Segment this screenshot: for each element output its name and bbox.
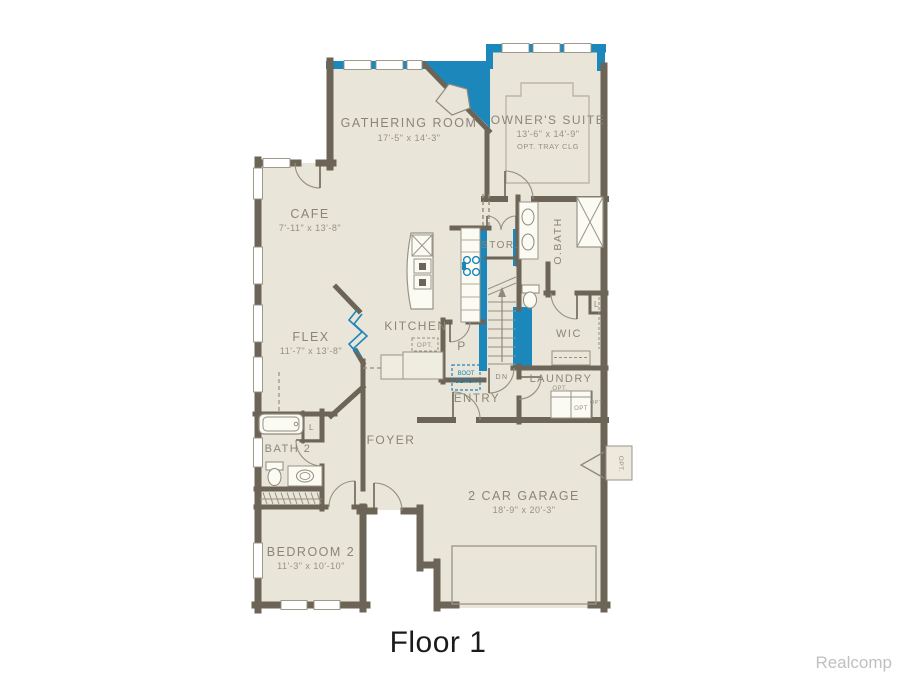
toilet-bowl (268, 469, 281, 486)
storage-label: STOR. (481, 240, 519, 251)
foyer-label: FOYER (367, 433, 416, 447)
floor-plan-page: GATHERING ROOM 17'-5" x 14'-3" OWNER'S S… (0, 0, 900, 675)
laundry-opt-washer: OPT. (552, 386, 567, 392)
window (314, 601, 340, 610)
bath2-linen-label: L (309, 423, 315, 432)
garage-label: 2 CAR GARAGE (468, 489, 580, 503)
owners-wall-step (486, 44, 493, 69)
window (254, 438, 263, 467)
stairs-dn-label: DN (495, 374, 508, 381)
window (254, 247, 263, 284)
owners-suite-label: OWNER'S SUITE (491, 113, 605, 127)
window (344, 61, 371, 70)
laundry-opt-door: OPT. (590, 400, 604, 406)
flex-label: FLEX (292, 330, 329, 344)
window (564, 44, 591, 53)
kitchen-opt-label: OPT. (417, 342, 433, 349)
window (281, 601, 307, 610)
gathering-room-label: GATHERING ROOM (341, 116, 478, 130)
laundry-opt-dryer: OPT (574, 406, 588, 412)
cafe-label: CAFE (290, 207, 329, 221)
garage-opt-door-label: OPT. (617, 456, 624, 472)
window (254, 357, 263, 392)
floor-title: Floor 1 (0, 626, 876, 660)
boot-bench-line2: BENCH (455, 379, 476, 385)
window (502, 44, 529, 53)
window (407, 61, 422, 70)
watermark: Realcomp (815, 653, 892, 673)
window (254, 168, 263, 199)
kitchen-island (407, 233, 433, 309)
cooktop-control (462, 262, 466, 270)
opt-cabinet (381, 355, 403, 379)
laundry-label: LAUNDRY (530, 373, 593, 385)
bedroom2-label: BEDROOM 2 (267, 545, 356, 559)
window (376, 61, 403, 70)
window (533, 44, 560, 53)
bedroom2-dims: 11'-3" x 10'-10" (277, 561, 345, 571)
floor-plan-drawing: GATHERING ROOM 17'-5" x 14'-3" OWNER'S S… (0, 0, 900, 675)
washer (551, 391, 571, 418)
pantry-label: P (457, 339, 467, 353)
wic-linen-label: L (594, 300, 600, 309)
gathering-room-dims: 17'-5" x 14'-3" (378, 133, 441, 143)
owners-suite-dims: 13'-6" x 14'-9" (517, 129, 580, 139)
window (254, 305, 263, 342)
owners-suite-note: OPT. TRAY CLG (517, 142, 579, 151)
bath2-label: BATH 2 (265, 443, 312, 455)
vanity (288, 466, 322, 486)
wic-label: WIC (556, 328, 582, 340)
window (254, 543, 263, 578)
entry-label: ENTRY (454, 393, 500, 405)
boot-bench-line1: BOOT (457, 371, 474, 377)
opt-cabinet (403, 352, 443, 379)
owners-bath-label: O.BATH (552, 217, 564, 264)
sink-drain (419, 279, 426, 286)
flex-dims: 11'-7" x 13'-8" (280, 346, 342, 356)
dryer (571, 391, 591, 418)
sink-drain (419, 263, 426, 270)
kitchen-label: KITCHEN (384, 319, 447, 333)
cafe-dims: 7'-11" x 13'-8" (279, 223, 341, 233)
garage-dims: 18'-9" x 20'-3" (493, 505, 556, 515)
window (263, 159, 290, 168)
toilet-bowl (524, 292, 537, 308)
